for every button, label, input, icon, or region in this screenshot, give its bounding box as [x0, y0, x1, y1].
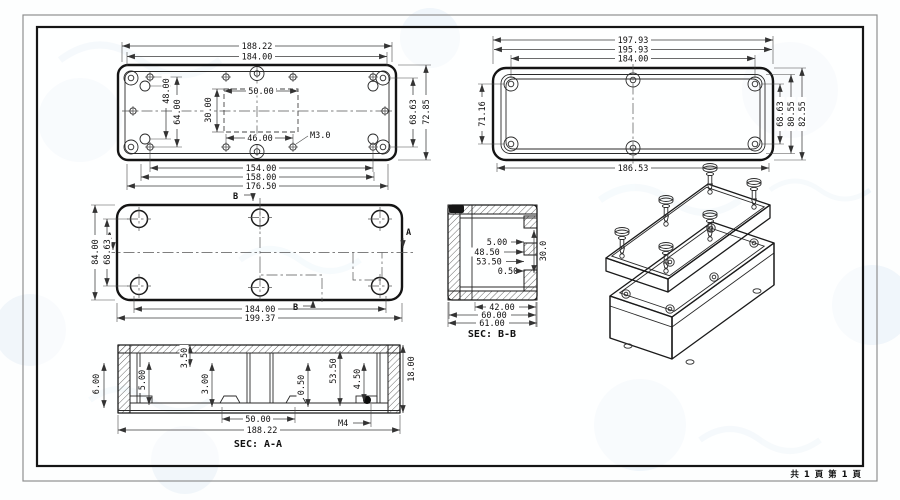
- dim-aa-1: 5.00: [138, 370, 148, 390]
- dim-lid2-right-height-2: 80.55: [787, 101, 797, 127]
- dim-lid-height-inner: 68.63: [409, 99, 419, 125]
- section-marker-b-bottom: B: [293, 303, 298, 313]
- dim-base-height-outer: 84.00: [91, 239, 101, 265]
- dim-bb-3: 53.50: [476, 258, 502, 268]
- dim-lid2-width-1: 197.93: [618, 36, 649, 46]
- dim-slot-width: 50.00: [248, 87, 274, 97]
- drawing-page: 188.22 184.00 50.00 30.00 46.00 M3.0 64.…: [0, 0, 900, 500]
- dim-base-height-inner: 68.63: [103, 239, 113, 265]
- dim-aa-6: 4.50: [353, 369, 363, 389]
- dim-lid2-right-height-1: 68.63: [776, 101, 786, 127]
- dim-lid2-bottom-width: 186.53: [618, 164, 649, 174]
- dim-left-pitch-inner: 48.00: [162, 78, 172, 104]
- dim-lid2-width-3: 184.00: [618, 55, 649, 65]
- dim-lid-height-outer: 72.85: [422, 99, 432, 125]
- dim-aa-bottom-2: 188.22: [247, 426, 278, 436]
- dim-bb-2: 48.50: [474, 248, 500, 258]
- dim-base-width-outer: 199.37: [245, 314, 276, 324]
- section-marker-a-right: A: [406, 228, 411, 238]
- dim-lid-width-outer: 188.22: [242, 42, 273, 52]
- dim-aa-2: 3.50: [180, 348, 190, 368]
- dim-aa-left-height: 6.00: [92, 374, 102, 394]
- page-footer: 共 1 頁 第 1 頁: [790, 469, 862, 480]
- thread-callout-m3: M3.0: [310, 131, 330, 141]
- dim-aa-bottom-1: 50.00: [245, 415, 271, 425]
- dim-aa-5: 53.50: [329, 358, 339, 384]
- dim-aa-right-height: 18.00: [407, 356, 417, 382]
- technical-drawing-canvas: 188.22 184.00 50.00 30.00 46.00 M3.0 64.…: [0, 0, 900, 500]
- dim-bb-5: 30.0: [539, 241, 549, 261]
- dim-bb-1: 5.00: [487, 238, 507, 248]
- dim-lid-width-inner: 184.00: [242, 53, 273, 63]
- dim-bb-4: 0.50: [498, 267, 518, 277]
- thread-callout-m4: M4: [338, 419, 348, 429]
- section-marker-b-top: B: [233, 192, 238, 202]
- dim-bottom-pitch-3: 176.50: [246, 182, 277, 192]
- dim-lid2-left-height: 71.16: [478, 101, 488, 127]
- dim-left-pitch-outer: 64.00: [173, 99, 183, 125]
- dim-aa-3: 3.00: [201, 374, 211, 394]
- dim-hole-pitch: 46.00: [247, 134, 273, 144]
- dim-bb-bottom-3: 61.00: [479, 319, 505, 329]
- dim-aa-4: 0.50: [297, 375, 307, 395]
- dim-lid2-right-height-3: 82.55: [798, 101, 808, 127]
- section-aa-label: SEC: A-A: [234, 439, 282, 450]
- section-bb-label: SEC: B-B: [468, 329, 516, 340]
- dim-slot-height: 30.00: [204, 97, 214, 123]
